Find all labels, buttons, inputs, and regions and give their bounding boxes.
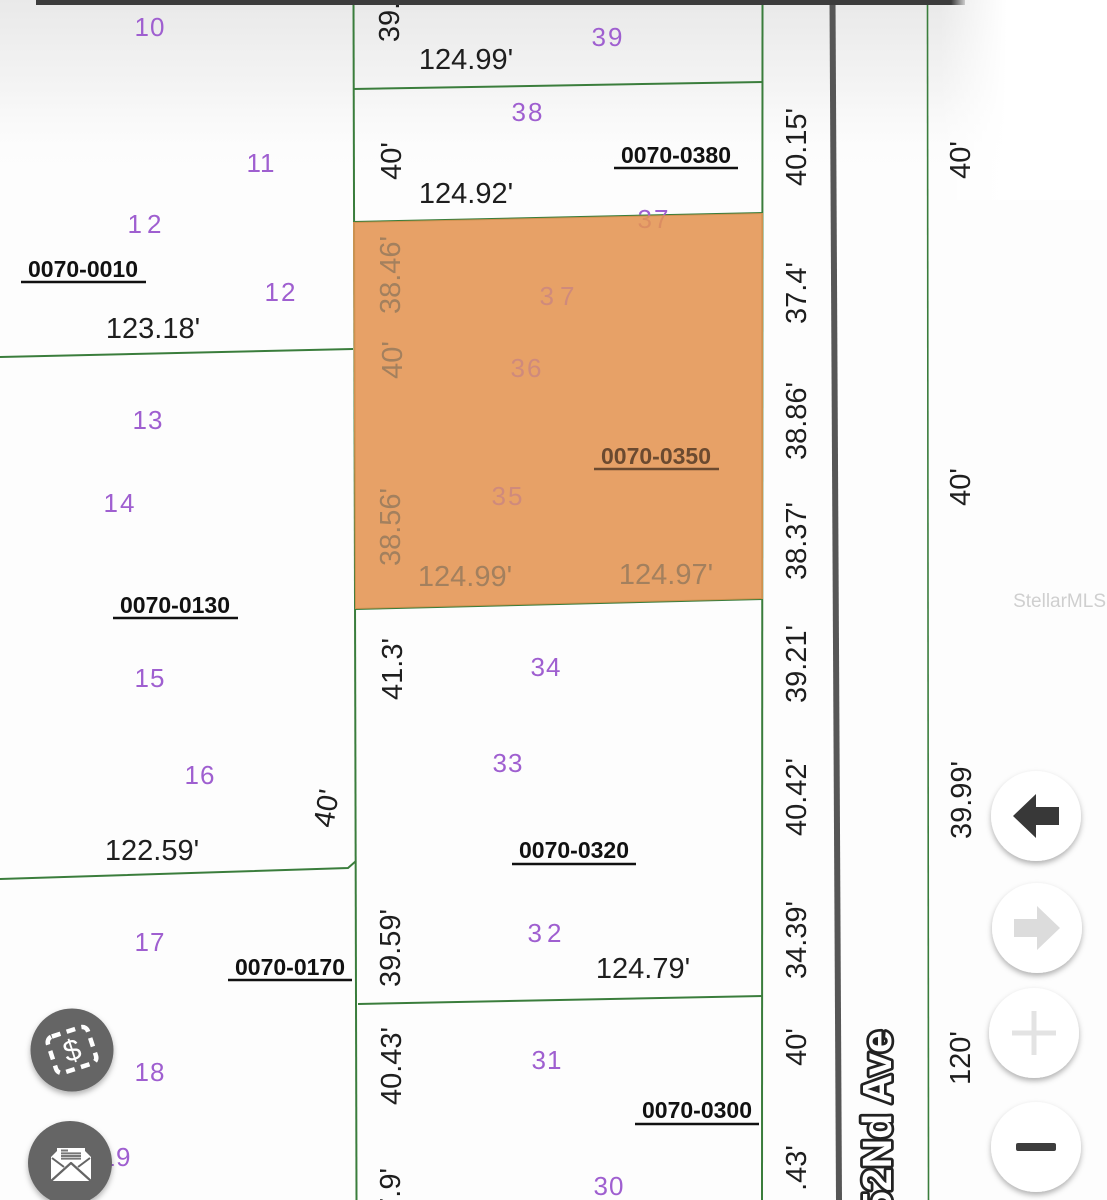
- svg-text:16: 16: [185, 760, 216, 790]
- svg-text:0070-0320: 0070-0320: [519, 837, 629, 863]
- svg-text:14: 14: [104, 488, 137, 518]
- svg-text:0070-0010: 0070-0010: [28, 256, 138, 282]
- svg-text:38.56': 38.56': [375, 488, 407, 566]
- svg-text:39.21': 39.21': [781, 625, 813, 703]
- svg-text:37.9': 37.9': [375, 1168, 407, 1200]
- svg-text:52Nd Ave: 52Nd Ave: [854, 1030, 900, 1200]
- svg-text:0070-0380: 0070-0380: [621, 142, 731, 168]
- svg-text:123.18': 123.18': [106, 313, 200, 345]
- svg-text:122.59': 122.59': [105, 835, 199, 867]
- svg-text:37.4': 37.4': [781, 262, 813, 324]
- svg-text:11: 11: [247, 148, 276, 178]
- svg-text:12: 12: [128, 209, 167, 239]
- svg-text:35: 35: [492, 481, 525, 511]
- svg-text:39.: 39.: [374, 2, 406, 42]
- svg-text:40.42': 40.42': [781, 758, 813, 836]
- svg-text:37: 37: [540, 281, 581, 311]
- svg-text:10: 10: [135, 12, 166, 42]
- svg-text:0070-0130: 0070-0130: [120, 592, 230, 618]
- svg-text:0070-0170: 0070-0170: [235, 954, 345, 980]
- svg-text:40': 40': [376, 142, 408, 180]
- svg-text:12: 12: [265, 277, 298, 307]
- svg-text:40.43': 40.43': [376, 1027, 408, 1105]
- svg-text:13: 13: [133, 405, 164, 435]
- svg-text:31: 31: [532, 1045, 563, 1075]
- svg-text:40': 40': [781, 1028, 813, 1066]
- svg-text:17: 17: [135, 927, 166, 957]
- svg-text:33: 33: [493, 748, 524, 778]
- svg-text:120': 120': [945, 1031, 977, 1085]
- svg-text:39: 39: [592, 22, 625, 52]
- svg-text:124.97': 124.97': [619, 559, 713, 591]
- svg-text:40': 40': [377, 341, 409, 379]
- svg-text:39.59': 39.59': [375, 909, 407, 987]
- svg-text:32: 32: [528, 918, 567, 948]
- svg-text:18: 18: [135, 1057, 166, 1087]
- svg-text:124.79': 124.79': [596, 953, 690, 985]
- svg-text:40': 40': [945, 468, 977, 506]
- svg-text:40.15': 40.15': [781, 108, 813, 186]
- svg-text:0070-0350: 0070-0350: [601, 443, 711, 469]
- svg-text:.43': .43': [781, 1145, 813, 1191]
- svg-text:40': 40': [308, 787, 346, 830]
- svg-text:34.39': 34.39': [781, 901, 813, 979]
- svg-text:0070-0300: 0070-0300: [642, 1097, 752, 1123]
- svg-text:38: 38: [512, 97, 545, 127]
- svg-text:124.99': 124.99': [419, 44, 513, 76]
- svg-text:41.3': 41.3': [377, 638, 409, 700]
- svg-text:38.37': 38.37': [781, 502, 813, 580]
- svg-text:124.99': 124.99': [418, 561, 512, 593]
- svg-text:40': 40': [945, 141, 977, 179]
- svg-text:36: 36: [511, 353, 544, 383]
- svg-text:124.92': 124.92': [419, 178, 513, 210]
- svg-text:38.86': 38.86': [781, 382, 813, 460]
- svg-text:StellarMLS: StellarMLS: [1013, 591, 1106, 612]
- svg-text:39.99': 39.99': [946, 761, 978, 839]
- svg-text:38.46': 38.46': [375, 236, 407, 314]
- svg-text:34: 34: [531, 652, 562, 682]
- svg-text:30: 30: [594, 1171, 625, 1200]
- svg-text:15: 15: [135, 663, 166, 693]
